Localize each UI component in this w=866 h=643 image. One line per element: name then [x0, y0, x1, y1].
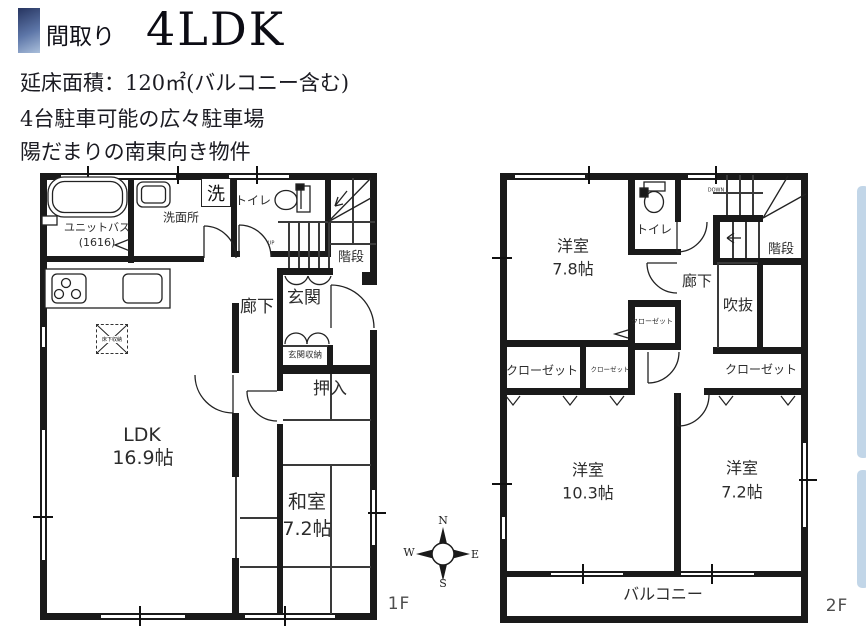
closet-mid-label: クローゼット	[631, 318, 673, 325]
header-accent-icon	[18, 8, 40, 53]
door-arc-room-7-2	[678, 395, 709, 426]
header-parking: 4台駐車可能の広々駐車場	[20, 103, 264, 133]
corridor-1f-label: 廊下	[240, 299, 274, 317]
compass-circle	[432, 543, 454, 565]
room-10-3-label: 洋室	[572, 463, 604, 480]
door-arc-washitsu	[247, 391, 277, 421]
washroom-label: 洗面所	[163, 212, 199, 225]
up-label: UP	[268, 241, 275, 246]
toilet-icon-2f	[640, 182, 665, 213]
entrance-label: 玄関	[287, 290, 321, 308]
door-arc-room-7-8	[647, 263, 677, 293]
laundry-box: 洗	[201, 178, 231, 207]
washitsu-label: 和室	[288, 493, 326, 513]
stairs-2f-winders	[727, 176, 806, 243]
compass-w-label: W	[403, 547, 414, 559]
closet-right-label: クローゼット	[725, 364, 797, 377]
room-7-2-size-label: 7.2帖	[721, 485, 762, 502]
down-label: DOWN	[708, 188, 724, 193]
door-arc-toilet-1f	[239, 225, 271, 257]
header-floor-area: 延床面積：120㎡(バルコニー含む)	[20, 67, 349, 97]
unit-bath-label: ユニットバス	[64, 222, 130, 234]
room-7-8-size-label: 7.8帖	[552, 262, 593, 279]
plan-type: 4LDK	[146, 2, 285, 56]
corridor-2f-label: 廊下	[682, 274, 712, 290]
room-7-2-label: 洋室	[726, 461, 758, 478]
stairs-1f-label: 階段	[338, 251, 364, 265]
toilet-icon-1f	[275, 184, 310, 212]
compass-s-label: S	[439, 578, 447, 590]
compass-n-label: N	[438, 515, 448, 527]
toilet-1f-label: トイレ	[235, 195, 271, 208]
bath-door-arrow	[115, 239, 130, 251]
door-arc-room-10-3	[648, 352, 679, 383]
entrance-storage-label: 玄関収納	[288, 352, 322, 361]
floor-storage-box: 床下収納	[96, 324, 128, 354]
sink-icon	[137, 182, 170, 207]
ldk-size-label: 16.9帖	[112, 449, 173, 469]
closet-door-arrow	[615, 330, 628, 338]
room-7-8-label: 洋室	[557, 239, 589, 256]
balcony-label: バルコニー	[623, 587, 703, 604]
compass-e-label: E	[471, 549, 479, 561]
kitchen-counter	[45, 269, 170, 308]
door-arc-washroom	[204, 226, 236, 258]
washitsu-size-label: 7.2帖	[282, 520, 331, 540]
floorplan-page: 間取り 4LDK 延床面積：120㎡(バルコニー含む) 4台駐車可能の広々駐車場…	[0, 0, 866, 643]
room-10-3-size-label: 10.3帖	[562, 486, 614, 503]
floor-label-2f: 2F	[826, 598, 849, 616]
closet-small-label: クローゼット	[591, 367, 630, 374]
stairs-1f-winders	[328, 178, 371, 222]
bathtub-icon	[42, 177, 127, 225]
unit-bath-size-label: (1616)	[79, 237, 116, 249]
laundry-label: 洗	[207, 180, 225, 206]
ldk-label: LDK	[123, 426, 161, 446]
entrance-cabinet-arcs	[285, 276, 331, 344]
door-arc-entrance	[331, 285, 374, 328]
door-arc-ldk	[195, 375, 233, 413]
stairs-2f-label: 階段	[768, 243, 794, 257]
floor-label-1f: 1F	[388, 596, 411, 614]
closet-big-label: クローゼット	[506, 365, 578, 378]
header-tag: 間取り	[46, 17, 115, 51]
kitchen-sink-icon	[123, 274, 162, 303]
door-arc-toilet-2f	[677, 222, 707, 252]
header-orientation: 陽だまりの南東向き物件	[20, 136, 251, 166]
toilet-2f-label: トイレ	[636, 224, 672, 237]
floor-storage-label: 床下収納	[102, 336, 122, 343]
void-label: 吹抜	[723, 298, 753, 314]
closet-chevrons	[506, 396, 795, 405]
oshiire-label: 押入	[313, 381, 347, 399]
